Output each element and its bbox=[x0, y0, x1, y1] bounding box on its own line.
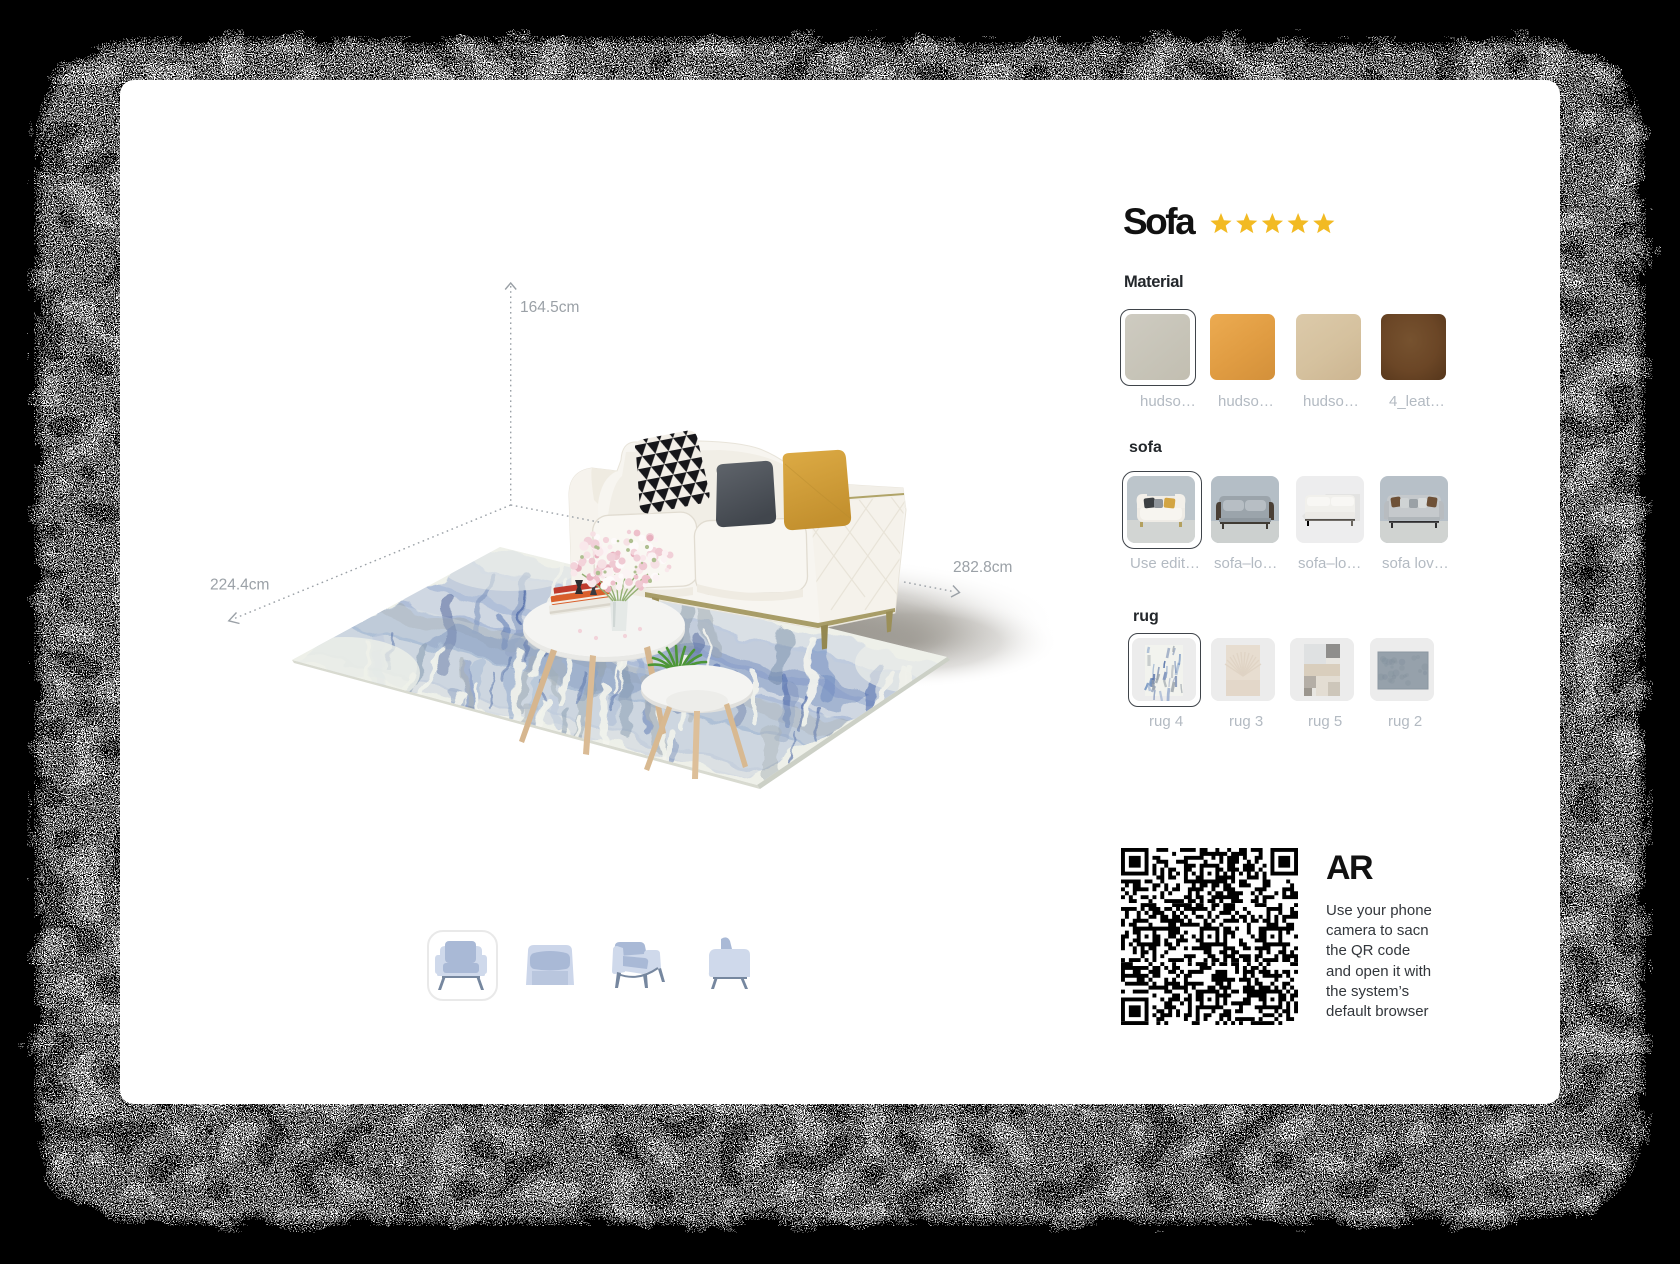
svg-text:282.8cm: 282.8cm bbox=[953, 559, 1012, 576]
svg-text:164.5cm: 164.5cm bbox=[520, 299, 579, 316]
svg-text:224.4cm: 224.4cm bbox=[210, 577, 269, 594]
